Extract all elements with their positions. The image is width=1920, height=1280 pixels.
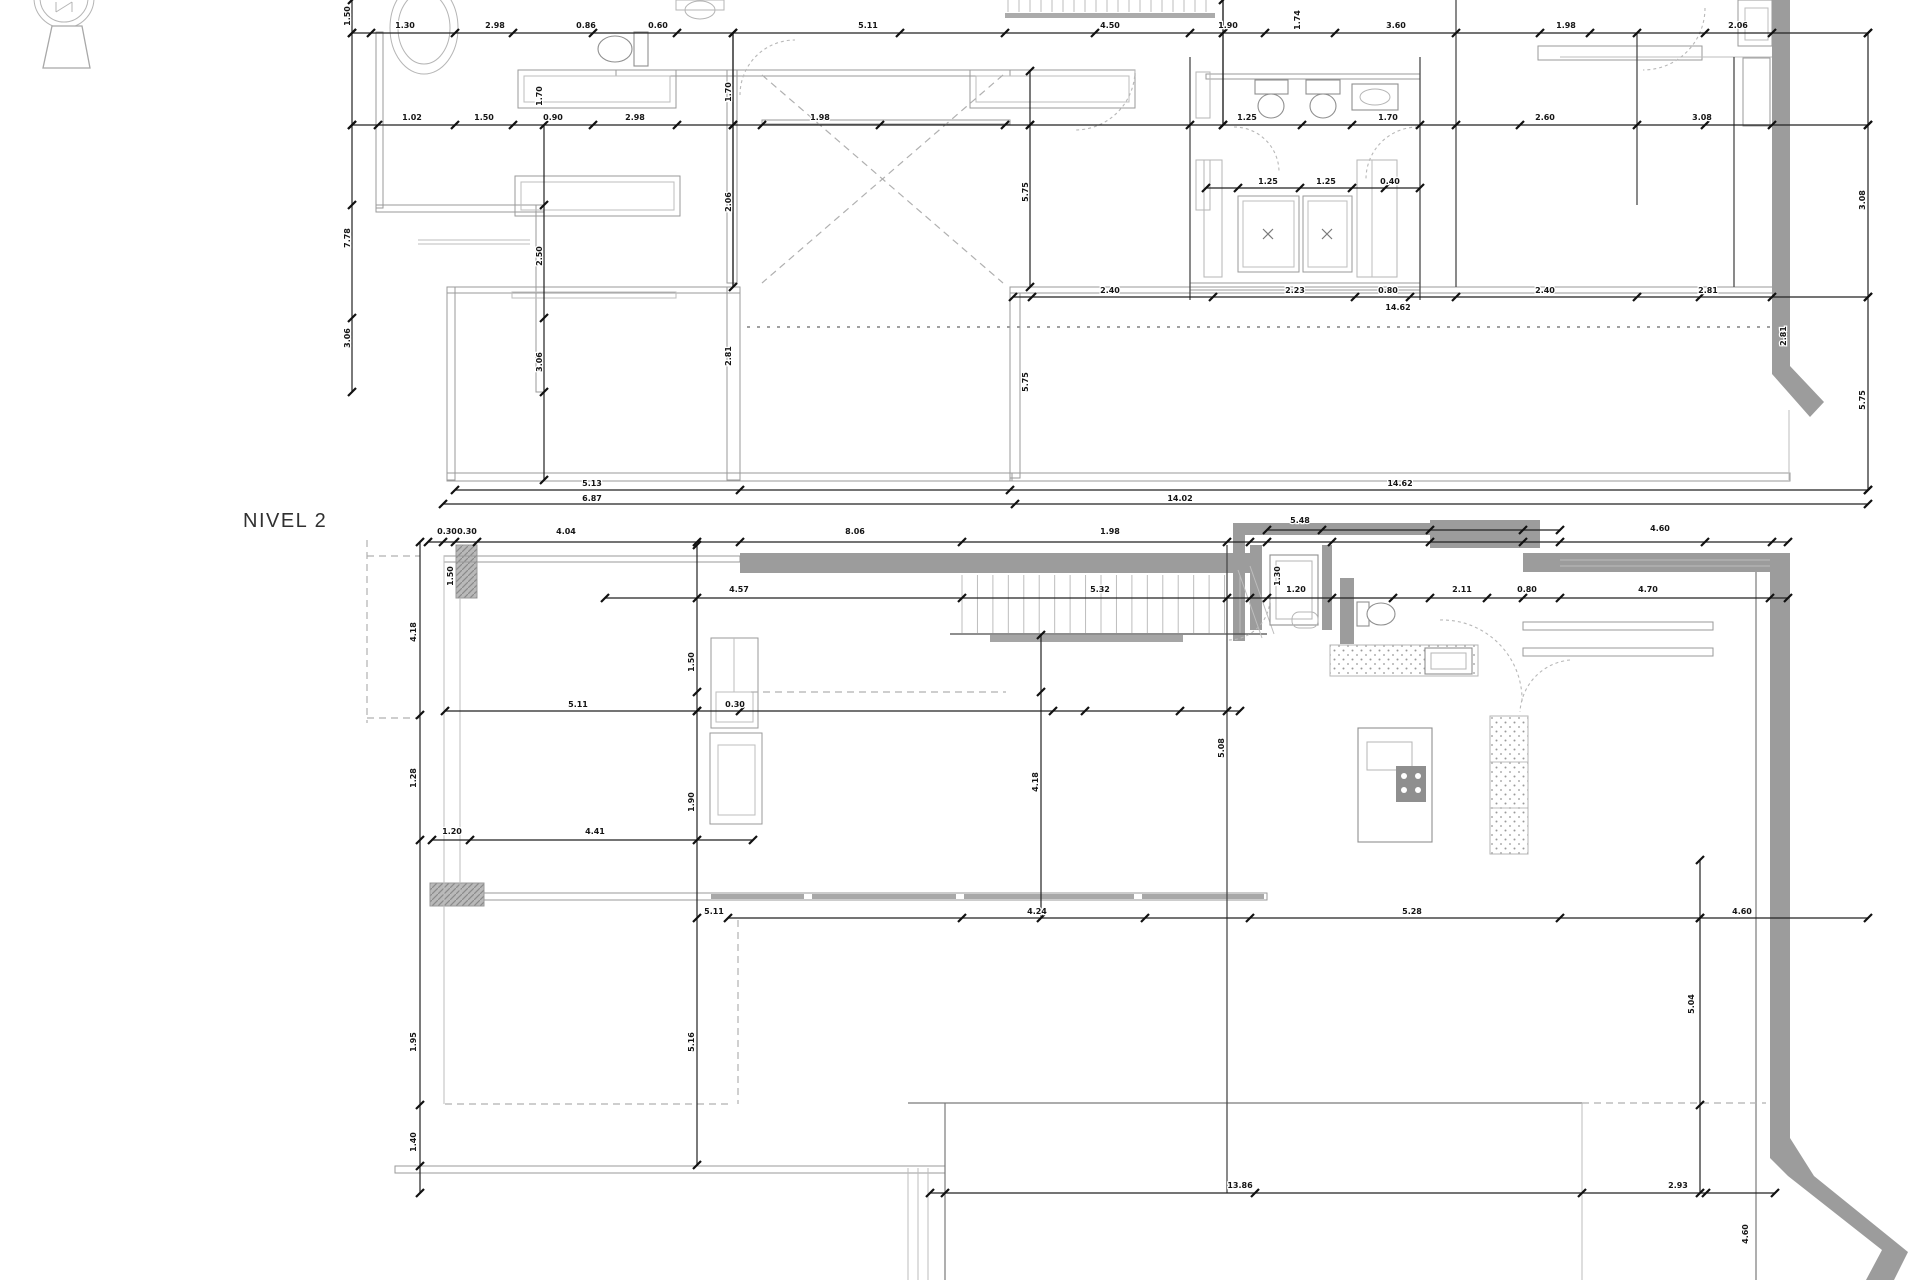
upper-floor-plan [376, 0, 1824, 481]
dimension-label: 4.57 [729, 585, 749, 594]
dimension-label: 5.48 [1290, 516, 1310, 525]
dimension-label: 14.62 [1385, 303, 1410, 312]
upper-stair-base [1005, 13, 1215, 18]
dimension-label: 1.98 [1100, 527, 1120, 536]
dimension-label: 3.60 [1386, 21, 1406, 30]
dimension-label: 1.90 [1218, 21, 1238, 30]
dimension-label: 6.87 [582, 494, 602, 503]
dimension-label: 5.28 [1402, 907, 1422, 916]
dimension-label: 13.86 [1227, 1181, 1253, 1190]
dimension-label: 1.50 [446, 566, 455, 586]
dimension-label: 0.80 [1378, 286, 1398, 295]
dimension-label: 0.60 [648, 21, 668, 30]
double-height-void [762, 75, 1003, 283]
dimension-label: 3.08 [1692, 113, 1712, 122]
dimension-label: 2.81 [1698, 286, 1718, 295]
dimension-label: 4.60 [1650, 524, 1670, 533]
level-label: NIVEL 2 [243, 510, 327, 532]
dimension-label: 0.86 [576, 21, 596, 30]
dimension-label: 5.11 [858, 21, 878, 30]
dimension-label: 4.24 [1027, 907, 1047, 916]
sink [1352, 84, 1398, 110]
dimension-label: 5.08 [1217, 738, 1226, 758]
north-indicator-icon [34, 0, 94, 68]
dimension-label: 0.30 [457, 527, 477, 536]
dimension-label: 2.81 [724, 346, 733, 366]
column [456, 545, 477, 598]
dimension-label: 2.40 [1535, 286, 1555, 295]
dimension-label: 2.98 [485, 21, 505, 30]
pantry-shelves [1490, 716, 1528, 854]
dimension-label: 1.25 [1316, 177, 1336, 186]
dimension-label: 1.20 [442, 827, 462, 836]
dimension-label: 7.78 [343, 228, 352, 248]
dimension-label: 14.62 [1387, 479, 1412, 488]
dimension-label: 2.11 [1452, 585, 1472, 594]
upper-right-gray-wall [1772, 0, 1824, 417]
dimension-label: 0.90 [543, 113, 563, 122]
kitchen-sink [1425, 648, 1472, 674]
dimension-label: 2.81 [1779, 326, 1788, 346]
dimension-label: 4.70 [1638, 585, 1658, 594]
dimension-label: 1.95 [409, 1032, 418, 1052]
dimension-label: 0.30 [437, 527, 457, 536]
toilet [1255, 80, 1288, 94]
dimension-label: 5.32 [1090, 585, 1110, 594]
lower-floor-plan [367, 520, 1908, 1280]
dimension-label: 0.80 [1517, 585, 1537, 594]
dimension-label: 2.50 [535, 246, 544, 266]
dimension-label: 5.11 [704, 907, 724, 916]
dimension-label: 1.25 [1237, 113, 1257, 122]
dimension-label: 2.06 [1728, 21, 1748, 30]
dimension-label: 1.50 [474, 113, 494, 122]
dimension-label: 3.06 [535, 352, 544, 372]
stove [1396, 766, 1426, 802]
dimension-label: 2.06 [724, 192, 733, 212]
toilet [1306, 80, 1340, 94]
dimension-label: 4.41 [585, 827, 605, 836]
lower-dashed-lines [367, 540, 1766, 1104]
upper-walls-dark [733, 0, 1734, 300]
dimension-label: 1.50 [343, 6, 352, 26]
upper-fixtures [390, 0, 1398, 277]
dimension-label: 5.04 [1687, 994, 1696, 1014]
stair-handrail [990, 635, 1183, 642]
upper-stair [1008, 0, 1206, 12]
bathtub [390, 0, 458, 74]
ramp-wall [1770, 1138, 1908, 1280]
dimension-label: 1.50 [687, 652, 696, 672]
main-stair [962, 575, 1240, 633]
dimension-label: 3.08 [1858, 190, 1867, 210]
dimension-label: 5.75 [1858, 390, 1867, 410]
dimension-label: 0.40 [1380, 177, 1400, 186]
dimension-label: 1.70 [1378, 113, 1398, 122]
floor-plan-sheet: NIVEL 2 [0, 0, 1920, 1280]
dimension-label: 4.60 [1732, 907, 1752, 916]
dimension-lines [348, 0, 1872, 1197]
dimension-label: 1.98 [1556, 21, 1576, 30]
dimension-label: 1.25 [1258, 177, 1278, 186]
dimension-label: 1.90 [687, 792, 696, 812]
dimension-label: 2.98 [625, 113, 645, 122]
lower-fixtures [1270, 555, 1528, 854]
dimension-label: 14.02 [1167, 494, 1192, 503]
dimension-label: 5.75 [1021, 182, 1030, 202]
dimension-label: 3.06 [343, 328, 352, 348]
dimension-label: 0.30 [725, 700, 745, 709]
dimension-label: 4.18 [1031, 772, 1040, 792]
dimension-labels: 1.302.980.860.605.114.501.903.601.982.06… [343, 6, 1867, 1244]
dimension-label: 2.23 [1285, 286, 1305, 295]
dimension-label: 1.02 [402, 113, 422, 122]
dimension-label: 1.30 [395, 21, 415, 30]
toilet [634, 32, 648, 66]
dimension-label: 1.28 [409, 768, 418, 788]
dimension-label: 5.13 [582, 479, 602, 488]
dimension-label: 1.98 [810, 113, 830, 122]
column [430, 883, 484, 906]
dimension-label: 1.30 [1273, 566, 1282, 586]
dimension-label: 2.60 [1535, 113, 1555, 122]
upper-walls-thin [376, 0, 1790, 481]
dimension-label: 5.11 [568, 700, 588, 709]
lower-walls-thin [395, 545, 1770, 1280]
dimension-label: 5.75 [1021, 372, 1030, 392]
dimension-label: 2.93 [1668, 1181, 1688, 1190]
dimension-label: 4.60 [1741, 1224, 1750, 1244]
dimension-label: 1.40 [409, 1132, 418, 1152]
dimension-label: 1.74 [1293, 10, 1302, 30]
floor-plan-canvas: NIVEL 2 [0, 0, 1920, 1280]
dimension-label: 5.16 [687, 1032, 696, 1052]
dimension-label: 2.40 [1100, 286, 1120, 295]
dimension-label: 4.04 [556, 527, 576, 536]
dimension-label: 1.70 [535, 86, 544, 106]
dimension-label: 8.06 [845, 527, 865, 536]
dimension-label: 1.20 [1286, 585, 1306, 594]
dimension-label: 4.18 [409, 622, 418, 642]
dimension-label: 4.50 [1100, 21, 1120, 30]
dimension-label: 1.70 [724, 82, 733, 102]
